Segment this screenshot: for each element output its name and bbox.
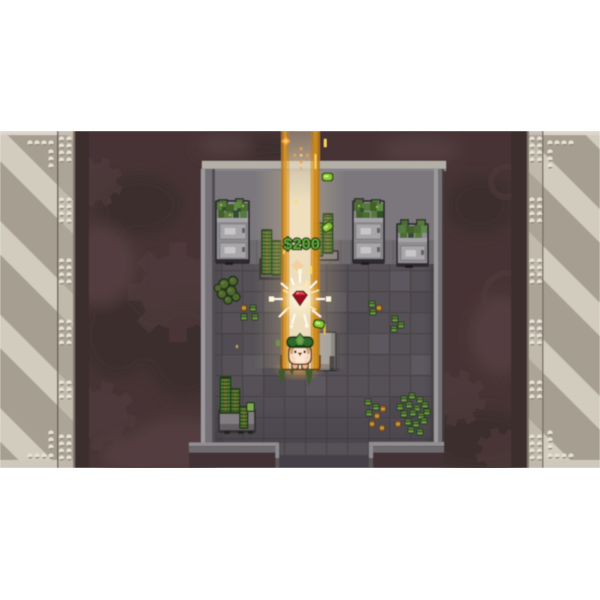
svg-text:$200: $200 (283, 236, 320, 254)
